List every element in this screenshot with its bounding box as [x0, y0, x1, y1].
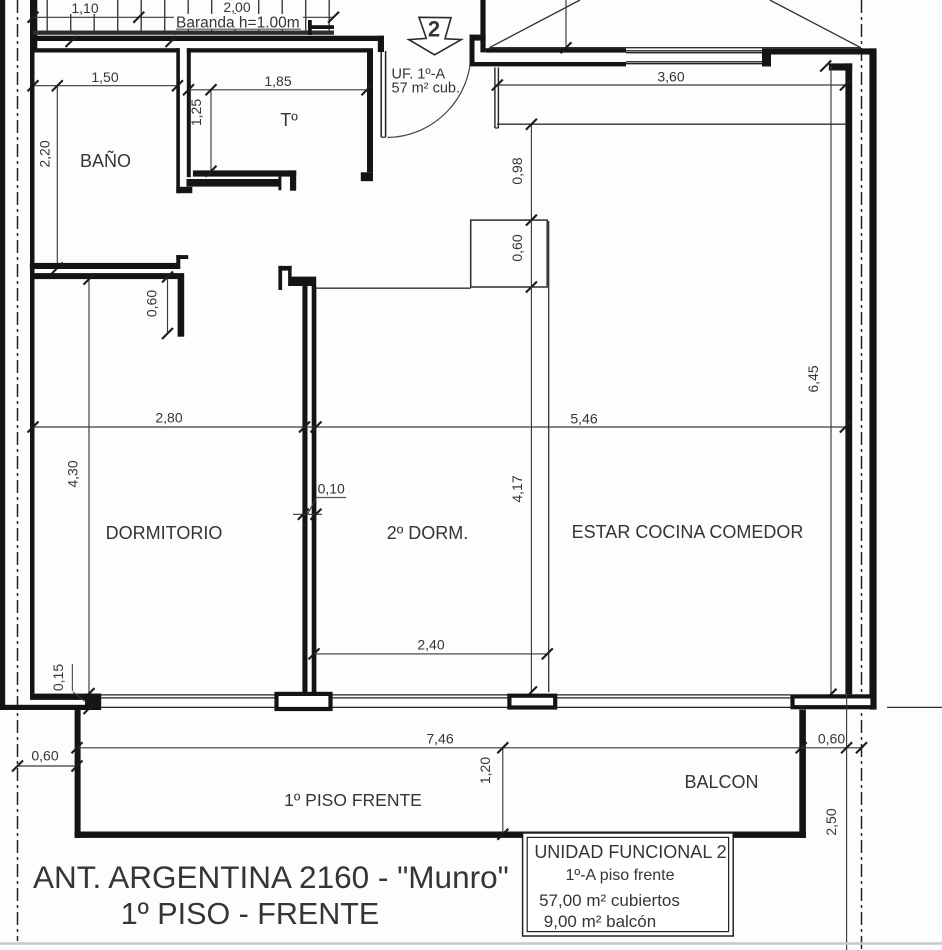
svg-text:9,00 m² balcón: 9,00 m² balcón	[544, 912, 656, 931]
svg-text:1º-A piso frente: 1º-A piso frente	[565, 867, 674, 884]
svg-text:ESTAR COCINA COMEDOR: ESTAR COCINA COMEDOR	[572, 522, 804, 542]
svg-text:Tº: Tº	[280, 110, 298, 130]
svg-text:DORMITORIO: DORMITORIO	[106, 523, 223, 543]
svg-text:1,20: 1,20	[477, 757, 493, 784]
svg-text:57 m² cub.: 57 m² cub.	[392, 81, 461, 97]
svg-text:2,50: 2,50	[823, 808, 839, 835]
svg-text:1,25: 1,25	[188, 99, 204, 126]
svg-text:2,00: 2,00	[223, 0, 250, 15]
svg-text:6,45: 6,45	[805, 365, 821, 392]
svg-text:0,60: 0,60	[509, 234, 525, 261]
svg-text:ANT. ARGENTINA 2160 - "Munro": ANT. ARGENTINA 2160 - "Munro"	[33, 859, 509, 895]
svg-text:BALCON: BALCON	[684, 772, 758, 792]
svg-text:UNIDAD FUNCIONAL 2: UNIDAD FUNCIONAL 2	[534, 842, 726, 862]
svg-text:0,60: 0,60	[818, 731, 845, 747]
svg-text:0,10: 0,10	[318, 481, 345, 497]
svg-text:2,40: 2,40	[417, 637, 444, 653]
svg-text:1º PISO FRENTE: 1º PISO FRENTE	[284, 790, 422, 810]
svg-text:1,85: 1,85	[264, 73, 291, 89]
svg-text:3,60: 3,60	[657, 69, 684, 85]
svg-text:0,15: 0,15	[50, 664, 66, 691]
svg-text:2,20: 2,20	[37, 140, 53, 167]
svg-text:0,60: 0,60	[31, 748, 58, 764]
svg-text:4,30: 4,30	[65, 460, 81, 487]
svg-text:57,00 m² cubiertos: 57,00 m² cubiertos	[539, 891, 680, 910]
svg-text:7,46: 7,46	[426, 731, 453, 747]
svg-text:4,17: 4,17	[509, 475, 525, 502]
svg-text:2: 2	[428, 17, 440, 42]
svg-text:5,46: 5,46	[570, 411, 597, 427]
svg-text:0,60: 0,60	[144, 290, 160, 317]
svg-text:2,80: 2,80	[155, 410, 182, 426]
svg-text:1,10: 1,10	[71, 0, 98, 16]
svg-text:1º PISO - FRENTE: 1º PISO - FRENTE	[121, 897, 380, 931]
svg-text:0,98: 0,98	[509, 157, 525, 184]
svg-text:1,50: 1,50	[91, 69, 118, 85]
svg-text:BAÑO: BAÑO	[80, 150, 131, 171]
svg-text:2º DORM.: 2º DORM.	[387, 523, 469, 543]
